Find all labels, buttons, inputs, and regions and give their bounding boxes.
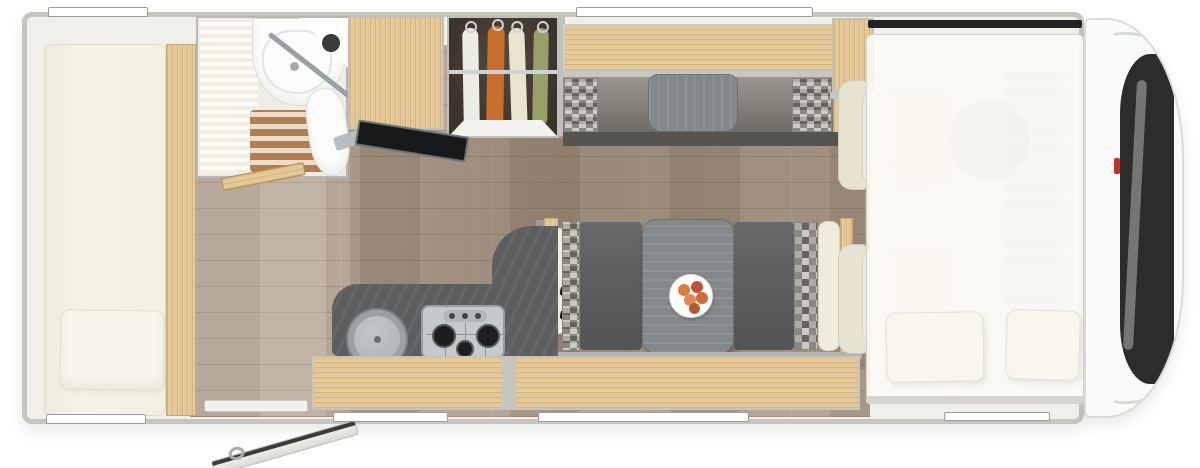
burner-icon	[432, 324, 456, 348]
dinette-headrest-right	[818, 221, 840, 351]
top-bench-cushion-left	[564, 78, 598, 132]
window-cab-door	[944, 412, 1050, 421]
window-bottom-dinette	[538, 412, 749, 422]
fruit-plate	[669, 274, 713, 318]
faucet-icon	[290, 62, 299, 71]
window-bottom-left	[46, 414, 146, 424]
window-top-center	[576, 7, 813, 17]
cabinet-divider	[504, 356, 514, 410]
chrome-trim-bottom-icon	[1101, 363, 1180, 410]
window-top-left	[48, 7, 148, 17]
dinette-cushion-left	[562, 221, 580, 351]
floorplan-canvas	[0, 0, 1200, 468]
wardrobe	[447, 16, 559, 138]
dinette-seat-right	[734, 222, 794, 350]
top-bench-backrest	[563, 24, 863, 72]
bed-foot-board	[166, 44, 196, 416]
wardrobe-front-edge	[449, 120, 557, 136]
bench-floor-mat	[563, 132, 863, 146]
lower-cabinet-left	[312, 356, 504, 410]
fruit-icon	[696, 292, 708, 304]
overcab-bed-pillow-left	[885, 311, 984, 383]
lower-cabinet-right	[514, 356, 860, 410]
hanging-shirt-orange	[486, 26, 505, 130]
dinette-seat-left	[580, 222, 642, 350]
hanging-shirt-green	[532, 28, 549, 126]
fruit-icon	[689, 303, 700, 314]
sink-drain-icon	[374, 336, 381, 343]
hanging-shirt-cream	[508, 28, 527, 128]
basin-drain-icon	[322, 34, 340, 52]
hob-knob-icon	[462, 313, 468, 319]
gas-hob	[421, 305, 505, 359]
entry-step-sill	[204, 400, 308, 412]
cab-roof-edge	[868, 20, 1082, 28]
dinette-cushion-right	[794, 222, 818, 350]
hanging-shirt-white	[462, 28, 480, 128]
top-bench-cushion-right	[792, 78, 832, 132]
overcab-bed-rail	[866, 396, 1084, 404]
folded-table-leaf	[648, 74, 738, 132]
rear-bed-pillow	[60, 309, 165, 390]
fridge-cabinet	[348, 16, 444, 130]
brand-badge-icon	[1114, 158, 1120, 174]
window-bottom-kitchen	[333, 412, 448, 422]
hob-knob-icon	[449, 313, 455, 319]
burner-icon	[476, 324, 500, 348]
floor-entry-light-patch	[196, 178, 326, 416]
hob-knob-icon	[475, 313, 481, 319]
wardrobe-rail	[449, 70, 559, 74]
entry-door-open	[211, 420, 359, 468]
cab-front	[1084, 18, 1184, 418]
overcab-bed-pillow-right	[1005, 309, 1081, 381]
